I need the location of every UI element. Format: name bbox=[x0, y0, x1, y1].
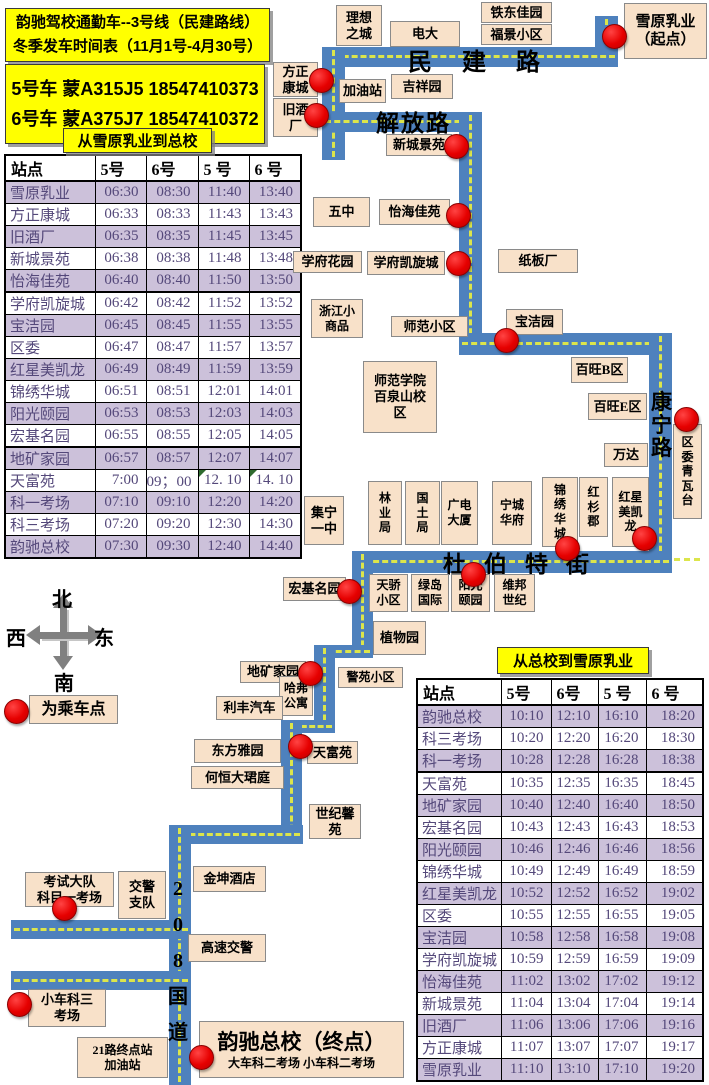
time-cell: 13:07 bbox=[551, 1037, 598, 1059]
stop-dot bbox=[288, 734, 313, 759]
station-name-cell: 新城景苑 bbox=[5, 248, 95, 270]
map-box: 天骄 小区 bbox=[369, 574, 408, 612]
time-cell: 18:50 bbox=[646, 795, 703, 817]
inbound-table-title: 从总校到雪原乳业 bbox=[497, 647, 649, 674]
station-name-cell: 韵驰总校 bbox=[5, 536, 95, 559]
time-cell: 09；00 bbox=[146, 470, 198, 492]
station-name-cell: 科一考场 bbox=[5, 492, 95, 514]
column-header: 5号 bbox=[95, 155, 146, 181]
road-dash-tail bbox=[674, 558, 700, 561]
time-cell: 12:58 bbox=[551, 927, 598, 949]
time-cell: 13:45 bbox=[249, 226, 301, 248]
time-cell: 07:30 bbox=[95, 536, 146, 559]
station-name-cell: 雪原乳业 bbox=[5, 181, 95, 204]
time-cell: 17:04 bbox=[598, 993, 646, 1015]
table-row: 天富苑7:0009；0012. 1014. 10 bbox=[5, 470, 301, 492]
table-row: 科一考场10:2812:2816:2818:38 bbox=[417, 750, 703, 773]
route-map-poster: 韵驰驾校通勤车--3号线（民建路线） 冬季发车时间表（11月1号-4月30号） … bbox=[0, 0, 709, 1085]
time-cell: 16:28 bbox=[598, 750, 646, 773]
stop-dot bbox=[461, 562, 486, 587]
table-row: 宏基名园10:4312:4316:4318:53 bbox=[417, 817, 703, 839]
table-row: 学府凯旋城06:4208:4211:5213:52 bbox=[5, 292, 301, 315]
map-box: 万达 bbox=[604, 443, 648, 467]
map-box: 加油站 bbox=[339, 79, 386, 103]
station-name-cell: 阳光颐园 bbox=[5, 403, 95, 425]
time-cell: 12:03 bbox=[198, 403, 249, 425]
time-cell: 12:30 bbox=[198, 514, 249, 536]
route-segment bbox=[322, 47, 345, 160]
time-cell: 16:35 bbox=[598, 772, 646, 795]
stop-dot bbox=[602, 24, 627, 49]
map-box: 何恒大珺庭 bbox=[191, 766, 284, 789]
time-cell: 16:55 bbox=[598, 905, 646, 927]
time-cell: 10:49 bbox=[501, 861, 551, 883]
station-name-cell: 宏基名园 bbox=[417, 817, 501, 839]
time-cell: 08:35 bbox=[146, 226, 198, 248]
time-cell: 16:20 bbox=[598, 728, 646, 750]
station-name-cell: 天富苑 bbox=[5, 470, 95, 492]
time-cell: 13:57 bbox=[249, 337, 301, 359]
time-cell: 17:10 bbox=[598, 1059, 646, 1082]
time-cell: 12:20 bbox=[198, 492, 249, 514]
station-name-cell: 地矿家园 bbox=[5, 447, 95, 470]
time-cell: 10:20 bbox=[501, 728, 551, 750]
station-name-cell: 旧酒厂 bbox=[5, 226, 95, 248]
page-title: 韵驰驾校通勤车--3号线（民建路线） 冬季发车时间表（11月1号-4月30号） bbox=[5, 8, 270, 62]
map-box: 21路终点站 加油站 bbox=[77, 1037, 168, 1078]
map-box: 福景小区 bbox=[481, 24, 552, 45]
time-cell: 10:43 bbox=[501, 817, 551, 839]
time-cell: 13:59 bbox=[249, 359, 301, 381]
page-title-line1: 韵驰驾校通勤车--3号线（民建路线） bbox=[16, 11, 259, 35]
time-cell: 11:40 bbox=[198, 181, 249, 204]
time-cell: 08:30 bbox=[146, 181, 198, 204]
column-header: 6 号 bbox=[249, 155, 301, 181]
time-cell: 12:40 bbox=[198, 536, 249, 559]
time-cell: 11:04 bbox=[501, 993, 551, 1015]
time-cell: 19:16 bbox=[646, 1015, 703, 1037]
time-cell: 19:02 bbox=[646, 883, 703, 905]
map-box: 学府凯旋城 bbox=[367, 251, 445, 275]
stop-dot bbox=[298, 661, 323, 686]
table-row: 新城景苑11:0413:0417:0419:14 bbox=[417, 993, 703, 1015]
time-cell: 09:30 bbox=[146, 536, 198, 559]
station-name-cell: 宝洁园 bbox=[5, 315, 95, 337]
time-cell: 19:09 bbox=[646, 949, 703, 971]
compass-north-label: 北 bbox=[52, 583, 72, 612]
column-header: 站点 bbox=[417, 679, 501, 705]
time-cell: 06:42 bbox=[95, 292, 146, 315]
time-cell: 11:59 bbox=[198, 359, 249, 381]
time-cell: 08:53 bbox=[146, 403, 198, 425]
map-box: 纸板厂 bbox=[498, 249, 578, 273]
time-cell: 11:45 bbox=[198, 226, 249, 248]
time-cell: 19:14 bbox=[646, 993, 703, 1015]
map-box: 怡海佳苑 bbox=[379, 199, 450, 225]
road-label: 2 0 8 国 道 bbox=[168, 871, 188, 1051]
legend-label: 为乘车点 bbox=[29, 695, 118, 724]
time-cell: 11:02 bbox=[501, 971, 551, 993]
map-box: 宁城 华府 bbox=[492, 481, 532, 545]
table-row: 科三考场07:2009:2012:3014:30 bbox=[5, 514, 301, 536]
time-cell: 06:33 bbox=[95, 204, 146, 226]
table-row: 地矿家园10:4012:4016:4018:50 bbox=[417, 795, 703, 817]
time-cell: 13:02 bbox=[551, 971, 598, 993]
stop-dot bbox=[309, 68, 334, 93]
map-box: 维邦 世纪 bbox=[494, 574, 535, 612]
column-header: 站点 bbox=[5, 155, 95, 181]
station-name-cell: 科一考场 bbox=[417, 750, 501, 773]
time-cell: 08:38 bbox=[146, 248, 198, 270]
station-name-cell: 锦绣华城 bbox=[417, 861, 501, 883]
time-cell: 08:33 bbox=[146, 204, 198, 226]
stop-dot bbox=[494, 328, 519, 353]
stop-dot bbox=[444, 134, 469, 159]
table-row: 阳光颐园06:5308:5312:0314:03 bbox=[5, 403, 301, 425]
table-row: 雪原乳业11:1013:1017:1019:20 bbox=[417, 1059, 703, 1082]
station-name-cell: 宏基名园 bbox=[5, 425, 95, 448]
time-cell: 06:40 bbox=[95, 270, 146, 293]
inbound-timetable: 站点5号6号5 号6 号韵驰总校10:1012:1016:1018:20科三考场… bbox=[416, 678, 702, 1074]
time-cell: 12:43 bbox=[551, 817, 598, 839]
time-cell: 12:46 bbox=[551, 839, 598, 861]
station-name-cell: 红星美凯龙 bbox=[417, 883, 501, 905]
time-cell: 14:40 bbox=[249, 536, 301, 559]
time-cell: 12:40 bbox=[551, 795, 598, 817]
time-cell: 06:49 bbox=[95, 359, 146, 381]
time-cell: 06:53 bbox=[95, 403, 146, 425]
time-cell: 08:47 bbox=[146, 337, 198, 359]
time-cell: 16:58 bbox=[598, 927, 646, 949]
time-cell: 08:57 bbox=[146, 447, 198, 470]
station-name-cell: 方正康城 bbox=[5, 204, 95, 226]
compass-east-label: 东 bbox=[94, 622, 114, 651]
table-row: 锦绣华城06:5108:5112:0114:01 bbox=[5, 381, 301, 403]
time-cell: 08:45 bbox=[146, 315, 198, 337]
map-box: 林 业 局 bbox=[368, 481, 402, 545]
time-cell: 12:10 bbox=[551, 705, 598, 728]
station-name-cell: 科三考场 bbox=[5, 514, 95, 536]
map-box: 集宁 一中 bbox=[304, 496, 344, 545]
time-cell: 12. 10 bbox=[198, 470, 249, 492]
time-cell: 7:00 bbox=[95, 470, 146, 492]
station-name-cell: 红星美凯龙 bbox=[5, 359, 95, 381]
map-box: 区 委 青 瓦 台 bbox=[673, 424, 702, 519]
table-row: 韵驰总校10:1012:1016:1018:20 bbox=[417, 705, 703, 728]
time-cell: 12:35 bbox=[551, 772, 598, 795]
time-cell: 06:55 bbox=[95, 425, 146, 448]
column-header: 6号 bbox=[551, 679, 598, 705]
map-box: 师范学院 百泉山校 区 bbox=[363, 361, 437, 433]
station-name-cell: 科三考场 bbox=[417, 728, 501, 750]
time-cell: 06:30 bbox=[95, 181, 146, 204]
time-cell: 11:52 bbox=[198, 292, 249, 315]
table-row: 方正康城06:3308:3311:4313:43 bbox=[5, 204, 301, 226]
table-row: 科一考场07:1009:1012:2014:20 bbox=[5, 492, 301, 514]
time-cell: 06:38 bbox=[95, 248, 146, 270]
time-cell: 11:55 bbox=[198, 315, 249, 337]
stop-dot bbox=[674, 407, 699, 432]
table-row: 新城景苑06:3808:3811:4813:48 bbox=[5, 248, 301, 270]
time-cell: 10:28 bbox=[501, 750, 551, 773]
map-box: 浙江小 商品 bbox=[311, 299, 363, 338]
time-cell: 10:35 bbox=[501, 772, 551, 795]
map-box: 五中 bbox=[313, 197, 370, 227]
stop-dot bbox=[555, 536, 580, 561]
station-name-cell: 地矿家园 bbox=[417, 795, 501, 817]
time-cell: 12:05 bbox=[198, 425, 249, 448]
time-cell: 16:43 bbox=[598, 817, 646, 839]
time-cell: 10:55 bbox=[501, 905, 551, 927]
time-cell: 18:20 bbox=[646, 705, 703, 728]
road-label: 康 宁 路 bbox=[651, 391, 672, 460]
terminal-box: 韵驰总校（终点） 大车科二考场 小车科二考场 bbox=[199, 1021, 404, 1078]
time-cell: 12:55 bbox=[551, 905, 598, 927]
time-cell: 13:06 bbox=[551, 1015, 598, 1037]
compass-west-label: 西 bbox=[6, 622, 26, 651]
outbound-timetable: 站点5号6号5 号6 号雪原乳业06:3008:3011:4013:40方正康城… bbox=[4, 154, 300, 532]
time-cell: 18:45 bbox=[646, 772, 703, 795]
time-cell: 19:12 bbox=[646, 971, 703, 993]
time-cell: 14:05 bbox=[249, 425, 301, 448]
page-title-line2: 冬季发车时间表（11月1号-4月30号） bbox=[13, 35, 262, 59]
time-cell: 19:20 bbox=[646, 1059, 703, 1082]
table-row: 宝洁园06:4508:4511:5513:55 bbox=[5, 315, 301, 337]
stop-dot bbox=[7, 992, 32, 1017]
time-cell: 18:38 bbox=[646, 750, 703, 773]
time-cell: 16:40 bbox=[598, 795, 646, 817]
time-cell: 13:43 bbox=[249, 204, 301, 226]
time-cell: 13:10 bbox=[551, 1059, 598, 1082]
station-name-cell: 锦绣华城 bbox=[5, 381, 95, 403]
table-row: 方正康城11:0713:0717:0719:17 bbox=[417, 1037, 703, 1059]
station-name-cell: 雪原乳业 bbox=[417, 1059, 501, 1082]
map-box: 利丰汽车 bbox=[216, 696, 283, 720]
time-cell: 11:10 bbox=[501, 1059, 551, 1082]
table-row: 红星美凯龙06:4908:4911:5913:59 bbox=[5, 359, 301, 381]
station-name-cell: 韵驰总校 bbox=[417, 705, 501, 728]
map-box: 师范小区 bbox=[391, 316, 468, 337]
map-box: 小车科三 考场 bbox=[28, 989, 106, 1027]
station-name-cell: 方正康城 bbox=[417, 1037, 501, 1059]
table-row: 旧酒厂06:3508:3511:4513:45 bbox=[5, 226, 301, 248]
outbound-timetable-table: 站点5号6号5 号6 号雪原乳业06:3008:3011:4013:40方正康城… bbox=[4, 154, 302, 559]
time-cell: 06:51 bbox=[95, 381, 146, 403]
inbound-timetable-table: 站点5号6号5 号6 号韵驰总校10:1012:1016:1018:20科三考场… bbox=[416, 678, 704, 1082]
time-cell: 19:17 bbox=[646, 1037, 703, 1059]
map-box: 高速交警 bbox=[188, 934, 266, 962]
route-segment bbox=[11, 971, 191, 990]
map-box: 国 土 局 bbox=[405, 481, 440, 545]
time-cell: 10:46 bbox=[501, 839, 551, 861]
bus-5-info: 5号车 蒙A315J5 18547410373 bbox=[11, 74, 258, 104]
time-cell: 12:59 bbox=[551, 949, 598, 971]
table-row: 怡海佳苑06:4008:4011:5013:50 bbox=[5, 270, 301, 293]
time-cell: 18:30 bbox=[646, 728, 703, 750]
compass-horizontal-bar bbox=[40, 632, 88, 639]
time-cell: 16:10 bbox=[598, 705, 646, 728]
time-cell: 14:30 bbox=[249, 514, 301, 536]
time-cell: 07:20 bbox=[95, 514, 146, 536]
map-box: 百旺B区 bbox=[571, 357, 628, 383]
time-cell: 12:49 bbox=[551, 861, 598, 883]
map-box: 植物园 bbox=[373, 621, 426, 655]
compass-south-label: 南 bbox=[54, 667, 74, 696]
column-header: 6 号 bbox=[646, 679, 703, 705]
time-cell: 10:58 bbox=[501, 927, 551, 949]
map-box: 世纪馨 苑 bbox=[309, 804, 361, 839]
table-row: 怡海佳苑11:0213:0217:0219:12 bbox=[417, 971, 703, 993]
compass-west-arrow-icon bbox=[26, 625, 40, 645]
time-cell: 11:50 bbox=[198, 270, 249, 293]
stop-dot bbox=[189, 1045, 214, 1070]
table-row: 地矿家园06:5708:5712:0714:07 bbox=[5, 447, 301, 470]
time-cell: 13:55 bbox=[249, 315, 301, 337]
time-cell: 10:40 bbox=[501, 795, 551, 817]
time-cell: 14. 10 bbox=[249, 470, 301, 492]
time-cell: 08:40 bbox=[146, 270, 198, 293]
legend-stop-dot-icon bbox=[4, 699, 29, 724]
map-box: 广电 大厦 bbox=[441, 481, 478, 545]
time-cell: 08:49 bbox=[146, 359, 198, 381]
table-row: 区委10:5512:5516:5519:05 bbox=[417, 905, 703, 927]
station-name-cell: 学府凯旋城 bbox=[417, 949, 501, 971]
table-row: 科三考场10:2012:2016:2018:30 bbox=[417, 728, 703, 750]
table-row: 学府凯旋城10:5912:5916:5919:09 bbox=[417, 949, 703, 971]
time-cell: 19:08 bbox=[646, 927, 703, 949]
table-row: 旧酒厂11:0613:0617:0619:16 bbox=[417, 1015, 703, 1037]
map-box: 红 杉 郡 bbox=[579, 477, 608, 537]
table-row: 红星美凯龙10:5212:5216:5219:02 bbox=[417, 883, 703, 905]
column-header: 5号 bbox=[501, 679, 551, 705]
time-cell: 12:20 bbox=[551, 728, 598, 750]
time-cell: 18:56 bbox=[646, 839, 703, 861]
table-row: 雪原乳业06:3008:3011:4013:40 bbox=[5, 181, 301, 204]
road-label: 解放路 bbox=[376, 104, 451, 138]
time-cell: 08:42 bbox=[146, 292, 198, 315]
time-cell: 11:06 bbox=[501, 1015, 551, 1037]
time-cell: 06:35 bbox=[95, 226, 146, 248]
station-name-cell: 天富苑 bbox=[417, 772, 501, 795]
time-cell: 16:49 bbox=[598, 861, 646, 883]
time-cell: 11:48 bbox=[198, 248, 249, 270]
table-row: 阳光颐园10:4612:4616:4618:56 bbox=[417, 839, 703, 861]
map-box: 百旺E区 bbox=[588, 393, 647, 420]
map-box: 铁东佳园 bbox=[481, 2, 552, 23]
station-name-cell: 怡海佳苑 bbox=[417, 971, 501, 993]
stop-dot bbox=[446, 203, 471, 228]
station-name-cell: 宝洁园 bbox=[417, 927, 501, 949]
stop-dot bbox=[337, 579, 362, 604]
map-box: 雪原乳业 （起点） bbox=[624, 3, 707, 59]
map-box: 东方雅园 bbox=[194, 739, 281, 763]
station-name-cell: 阳光颐园 bbox=[417, 839, 501, 861]
map-box: 金坤酒店 bbox=[193, 866, 266, 892]
map-box: 理想 之城 bbox=[336, 5, 382, 46]
stop-dot bbox=[304, 103, 329, 128]
map-box: 绿岛 国际 bbox=[411, 574, 449, 612]
time-cell: 07:10 bbox=[95, 492, 146, 514]
terminal-title: 韵驰总校（终点） bbox=[218, 1029, 386, 1055]
time-cell: 12:07 bbox=[198, 447, 249, 470]
time-cell: 06:57 bbox=[95, 447, 146, 470]
station-name-cell: 区委 bbox=[5, 337, 95, 359]
time-cell: 10:52 bbox=[501, 883, 551, 905]
route-segment bbox=[459, 333, 672, 355]
station-name-cell: 旧酒厂 bbox=[417, 1015, 501, 1037]
time-cell: 10:59 bbox=[501, 949, 551, 971]
table-row: 宝洁园10:5812:5816:5819:08 bbox=[417, 927, 703, 949]
stop-dot bbox=[52, 896, 77, 921]
time-cell: 13:40 bbox=[249, 181, 301, 204]
time-cell: 17:07 bbox=[598, 1037, 646, 1059]
time-cell: 16:52 bbox=[598, 883, 646, 905]
column-header: 5 号 bbox=[198, 155, 249, 181]
time-cell: 09:20 bbox=[146, 514, 198, 536]
terminal-subtitle: 大车科二考场 小车科二考场 bbox=[228, 1055, 375, 1071]
map-box: 学府花园 bbox=[293, 251, 362, 273]
table-row: 韵驰总校07:3009:3012:4014:40 bbox=[5, 536, 301, 559]
time-cell: 19:05 bbox=[646, 905, 703, 927]
stop-dot bbox=[632, 526, 657, 551]
road-label: 民建路 bbox=[408, 42, 570, 77]
time-cell: 06:45 bbox=[95, 315, 146, 337]
table-row: 天富苑10:3512:3516:3518:45 bbox=[417, 772, 703, 795]
time-cell: 09:10 bbox=[146, 492, 198, 514]
column-header: 6号 bbox=[146, 155, 198, 181]
time-cell: 12:01 bbox=[198, 381, 249, 403]
time-cell: 13:52 bbox=[249, 292, 301, 315]
time-cell: 11:57 bbox=[198, 337, 249, 359]
station-name-cell: 区委 bbox=[417, 905, 501, 927]
map-box: 新城景苑 bbox=[386, 134, 452, 156]
time-cell: 14:01 bbox=[249, 381, 301, 403]
table-row: 宏基名园06:5508:5512:0514:05 bbox=[5, 425, 301, 448]
table-row: 锦绣华城10:4912:4916:4918:59 bbox=[417, 861, 703, 883]
time-cell: 14:07 bbox=[249, 447, 301, 470]
stop-dot bbox=[446, 251, 471, 276]
map-box: 电大 bbox=[390, 21, 460, 47]
time-cell: 17:06 bbox=[598, 1015, 646, 1037]
map-box: 吉祥园 bbox=[391, 74, 453, 99]
time-cell: 12:28 bbox=[551, 750, 598, 773]
time-cell: 18:59 bbox=[646, 861, 703, 883]
time-cell: 16:59 bbox=[598, 949, 646, 971]
time-cell: 14:03 bbox=[249, 403, 301, 425]
time-cell: 08:55 bbox=[146, 425, 198, 448]
time-cell: 11:43 bbox=[198, 204, 249, 226]
map-box: 警苑小区 bbox=[338, 667, 403, 688]
route-segment bbox=[11, 920, 191, 939]
station-name-cell: 学府凯旋城 bbox=[5, 292, 95, 315]
time-cell: 06:47 bbox=[95, 337, 146, 359]
station-name-cell: 新城景苑 bbox=[417, 993, 501, 1015]
column-header: 5 号 bbox=[598, 679, 646, 705]
map-box: 交警 支队 bbox=[118, 871, 166, 919]
time-cell: 10:10 bbox=[501, 705, 551, 728]
time-cell: 16:46 bbox=[598, 839, 646, 861]
time-cell: 11:07 bbox=[501, 1037, 551, 1059]
time-cell: 12:52 bbox=[551, 883, 598, 905]
table-row: 区委06:4708:4711:5713:57 bbox=[5, 337, 301, 359]
time-cell: 14:20 bbox=[249, 492, 301, 514]
time-cell: 13:04 bbox=[551, 993, 598, 1015]
time-cell: 08:51 bbox=[146, 381, 198, 403]
map-box: 天富苑 bbox=[307, 741, 358, 764]
time-cell: 18:53 bbox=[646, 817, 703, 839]
outbound-table-title: 从雪原乳业到总校 bbox=[63, 128, 212, 153]
station-name-cell: 怡海佳苑 bbox=[5, 270, 95, 293]
